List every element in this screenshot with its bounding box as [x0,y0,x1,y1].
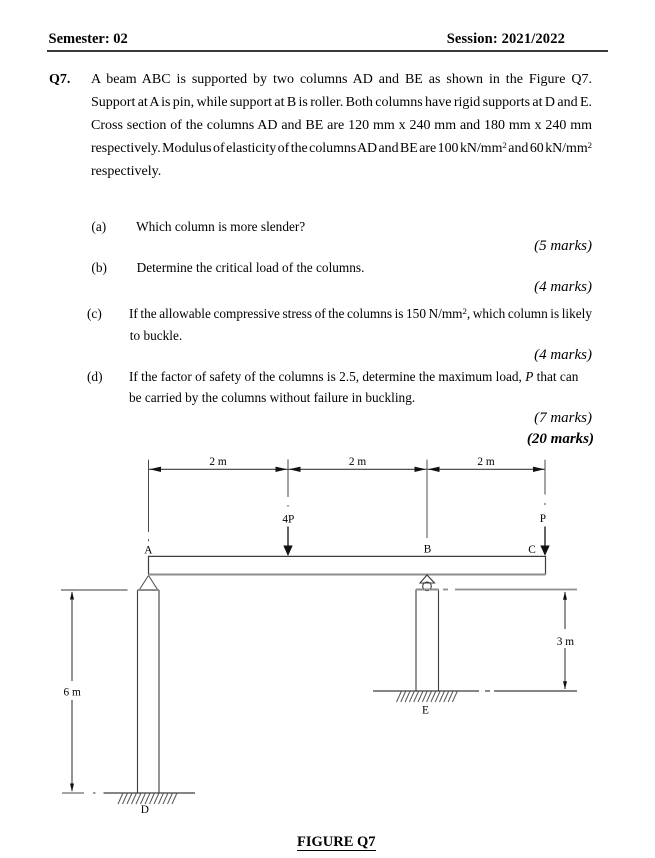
svg-text:B: B [424,544,432,556]
svg-text:C: C [528,544,536,556]
svg-text:3 m: 3 m [557,636,574,648]
svg-text:A: A [144,545,153,557]
svg-text:2 m: 2 m [209,456,226,468]
svg-text:2 m: 2 m [477,456,494,468]
svg-text:2 m: 2 m [349,456,366,468]
svg-text:D: D [141,804,149,816]
svg-text:E: E [422,705,429,717]
svg-text:4P: 4P [282,513,294,525]
svg-text:P: P [540,513,546,525]
svg-text:6 m: 6 m [64,687,81,699]
